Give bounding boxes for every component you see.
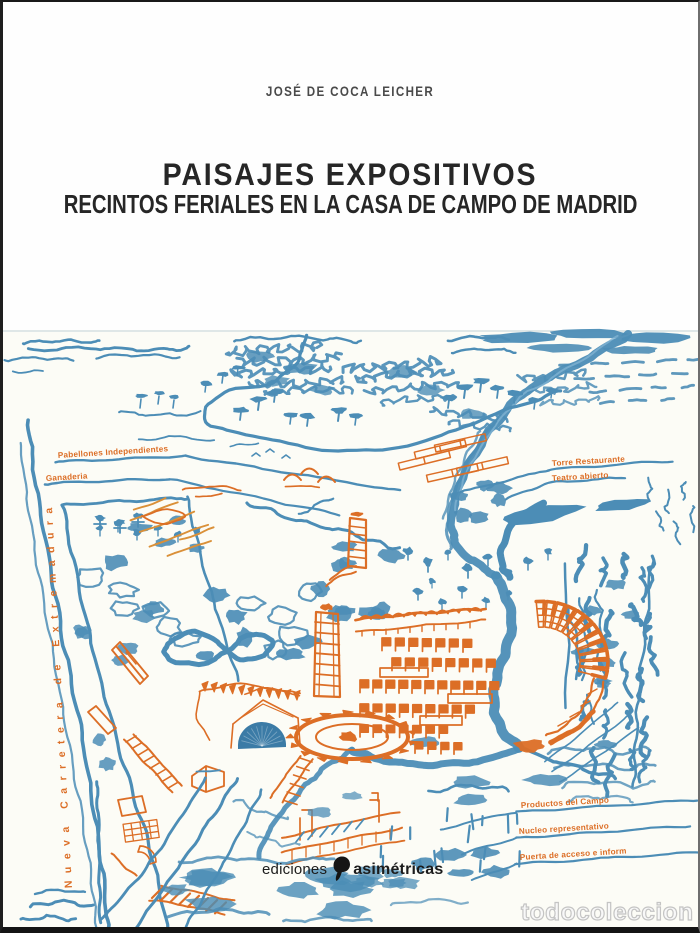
svg-text:Nueva Carretera de Extremadura: Nueva Carretera de Extremadura [43,500,75,889]
svg-text:Productos del Campo: Productos del Campo [521,796,610,810]
svg-text:Puerta de acceso e inform: Puerta de acceso e inform [520,846,627,862]
svg-text:Teatro abierto: Teatro abierto [552,471,609,483]
